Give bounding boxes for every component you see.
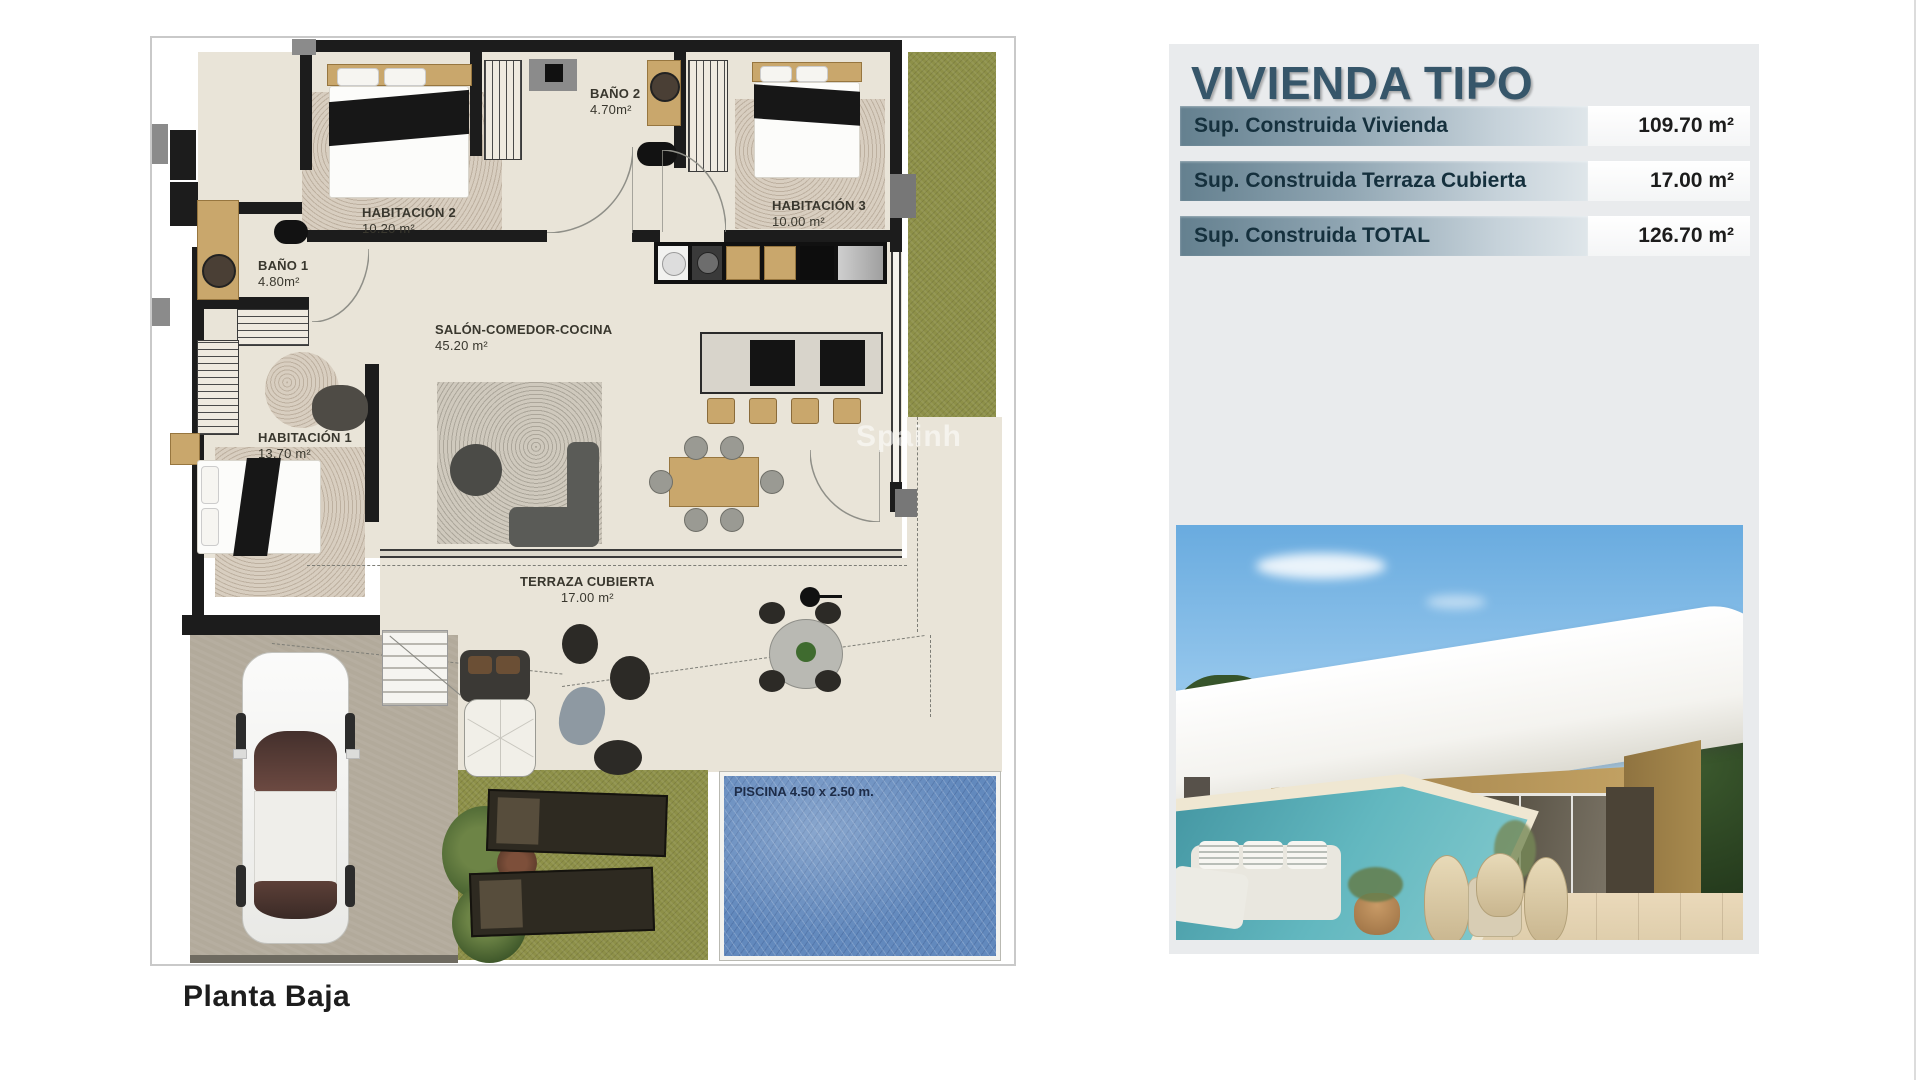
- room-name: TERRAZA CUBIERTA: [520, 574, 655, 590]
- outdoor-cushion: [468, 656, 492, 674]
- pillow: [796, 66, 828, 82]
- room-name: HABITACIÓN 3: [772, 198, 866, 214]
- coffee-table: [450, 444, 502, 496]
- room-label-habitacion3: HABITACIÓN 3 10.00 m²: [772, 198, 866, 231]
- driveway-edge: [190, 955, 458, 963]
- window-box-left-lower: [152, 298, 170, 326]
- outdoor-cushion: [496, 656, 520, 674]
- lounger-headrest: [479, 879, 523, 928]
- cloud: [1256, 553, 1386, 579]
- dining-chair: [684, 436, 708, 460]
- surface-row: Sup. Construida TOTAL 126.70 m²: [1180, 216, 1750, 256]
- sun-lounger: [486, 789, 668, 857]
- door-arc: [662, 150, 726, 232]
- island-sink: [820, 340, 865, 386]
- pouf: [610, 656, 650, 700]
- sun-lounger: [469, 867, 655, 937]
- dining-chair: [684, 508, 708, 532]
- parcel-dashed-line: [930, 635, 932, 717]
- car-roof: [254, 791, 337, 883]
- info-panel: VIVIENDA TIPO Sup. Construida Vivienda 1…: [1169, 44, 1759, 954]
- sofa-cushion: [1287, 841, 1327, 869]
- cloud: [1426, 595, 1486, 609]
- surface-value: 109.70 m²: [1588, 106, 1750, 146]
- lounger-headrest: [496, 797, 540, 844]
- door-arc: [810, 450, 880, 522]
- sofa-cushion: [1243, 841, 1283, 869]
- pouf: [594, 740, 642, 775]
- washer-drum-icon: [662, 252, 686, 276]
- parasol: [464, 699, 536, 777]
- window-box-left-upper: [152, 124, 168, 164]
- wicker-chair: [1524, 857, 1568, 940]
- island-hob: [750, 340, 795, 386]
- entry-wall-block-b: [170, 182, 198, 226]
- car-wheel: [236, 865, 246, 907]
- dining-chair: [760, 470, 784, 494]
- page-edge-line: [1914, 0, 1916, 1080]
- dining-chair: [720, 436, 744, 460]
- wall-cap-top: [292, 39, 316, 55]
- room-name: SALÓN-COMEDOR-COCINA: [435, 322, 612, 338]
- terrace-dashed-line: [307, 565, 907, 566]
- outdoor-shower-arm: [818, 595, 842, 598]
- car-mirror: [346, 749, 360, 759]
- wicker-chair: [1424, 855, 1470, 940]
- surface-value: 126.70 m²: [1588, 216, 1750, 256]
- pillow: [201, 466, 219, 504]
- pillow: [760, 66, 792, 82]
- closet-hall: [237, 309, 309, 346]
- room-name: BAÑO 1: [258, 258, 308, 274]
- outdoor-shower: [800, 587, 820, 607]
- surface-value: 17.00 m²: [1588, 161, 1750, 201]
- room-label-terraza: TERRAZA CUBIERTA 17.00 m²: [520, 574, 655, 607]
- patio-chair: [815, 602, 841, 624]
- room-name: BAÑO 2: [590, 86, 640, 102]
- kitchen-fridge: [838, 246, 883, 280]
- sink-bath1: [202, 254, 236, 288]
- swimming-pool: PISCINA 4.50 x 2.50 m.: [720, 772, 1000, 960]
- villa-render-photo: [1176, 525, 1743, 940]
- side-courtyard-floor: [907, 417, 1002, 772]
- plant-leaves: [1348, 867, 1403, 902]
- pillow: [384, 68, 426, 86]
- room-name: HABITACIÓN 2: [362, 205, 456, 221]
- door-arc: [547, 147, 633, 233]
- floor-plan: PISCINA 4.50 x 2.50 m. HABITACIÓN 2 10.2…: [150, 36, 1016, 966]
- wicker-chair: [1476, 853, 1524, 917]
- surface-row: Sup. Construida Terraza Cubierta 17.00 m…: [1180, 161, 1750, 201]
- room-name: HABITACIÓN 1: [258, 430, 352, 446]
- room-area: 10.20 m²: [362, 221, 456, 237]
- plan-caption: Planta Baja: [183, 980, 350, 1014]
- sliding-glass-door: [380, 549, 902, 558]
- car: [242, 652, 349, 944]
- pool-label: PISCINA 4.50 x 2.50 m.: [734, 784, 874, 799]
- table-plant: [796, 642, 816, 662]
- wall-entry: [235, 202, 302, 214]
- pillar-right-lower: [895, 489, 917, 517]
- room-area: 13.70 m²: [258, 446, 352, 462]
- closet-bedroom2: [484, 60, 522, 160]
- sofa-cushion: [1199, 841, 1239, 869]
- surface-label: Sup. Construida Terraza Cubierta: [1180, 161, 1588, 201]
- watermark: Spainh: [856, 420, 962, 454]
- pillow: [201, 508, 219, 546]
- sofa-seat: [509, 507, 599, 547]
- pillar-right-upper: [890, 174, 916, 218]
- patio-chair: [759, 602, 785, 624]
- bar-stool: [749, 398, 777, 424]
- dining-chair: [720, 508, 744, 532]
- wall-bed1-bottom: [182, 615, 380, 635]
- car-wheel: [345, 865, 355, 907]
- car-rear-window: [254, 881, 337, 919]
- bar-stool: [707, 398, 735, 424]
- pouf: [562, 624, 598, 664]
- shower-head-icon: [545, 64, 563, 82]
- patio-chair: [815, 670, 841, 692]
- dryer-drum-icon: [697, 252, 719, 274]
- room-label-habitacion2: HABITACIÓN 2 10.20 m²: [362, 205, 456, 238]
- room-area: 4.80m²: [258, 274, 308, 290]
- room-label-salon: SALÓN-COMEDOR-COCINA 45.20 m²: [435, 322, 612, 355]
- wall-bed2-left: [300, 52, 312, 170]
- room-area: 10.00 m²: [772, 214, 866, 230]
- room-area: 45.20 m²: [435, 338, 612, 354]
- wall-top: [314, 40, 900, 52]
- sink-bath2: [650, 72, 680, 102]
- kitchen-cabinet: [726, 246, 760, 280]
- room-label-bano2: BAÑO 2 4.70m²: [590, 86, 640, 119]
- door-arc: [312, 249, 369, 322]
- stairs: [382, 630, 448, 706]
- garden-strip: [908, 52, 996, 417]
- pillow: [337, 68, 379, 86]
- armchair-bedroom1: [312, 385, 368, 431]
- surface-row: Sup. Construida Vivienda 109.70 m²: [1180, 106, 1750, 146]
- room-area: 4.70m²: [590, 102, 640, 118]
- wall-right-upper: [890, 40, 902, 252]
- surface-label: Sup. Construida Vivienda: [1180, 106, 1588, 146]
- page: PISCINA 4.50 x 2.50 m. HABITACIÓN 2 10.2…: [0, 0, 1920, 1080]
- car-mirror: [233, 749, 247, 759]
- closet-bedroom1: [197, 340, 239, 435]
- wall-bed1-right: [365, 364, 379, 522]
- dining-table: [669, 457, 759, 507]
- patio-chair: [759, 670, 785, 692]
- room-area: 17.00 m²: [520, 590, 655, 606]
- room-label-bano1: BAÑO 1 4.80m²: [258, 258, 308, 291]
- toilet-bath1: [274, 220, 308, 244]
- car-windshield: [254, 731, 337, 793]
- kitchen-oven: [800, 246, 834, 280]
- surface-label: Sup. Construida TOTAL: [1180, 216, 1588, 256]
- panel-title: VIVIENDA TIPO: [1191, 56, 1533, 110]
- nightstand-bed1: [170, 433, 200, 465]
- room-label-habitacion1: HABITACIÓN 1 13.70 m²: [258, 430, 352, 463]
- kitchen-cabinet: [764, 246, 796, 280]
- dining-chair: [649, 470, 673, 494]
- chaise-lounge: [1176, 865, 1249, 930]
- entry-wall-block-a: [170, 130, 196, 180]
- bar-stool: [791, 398, 819, 424]
